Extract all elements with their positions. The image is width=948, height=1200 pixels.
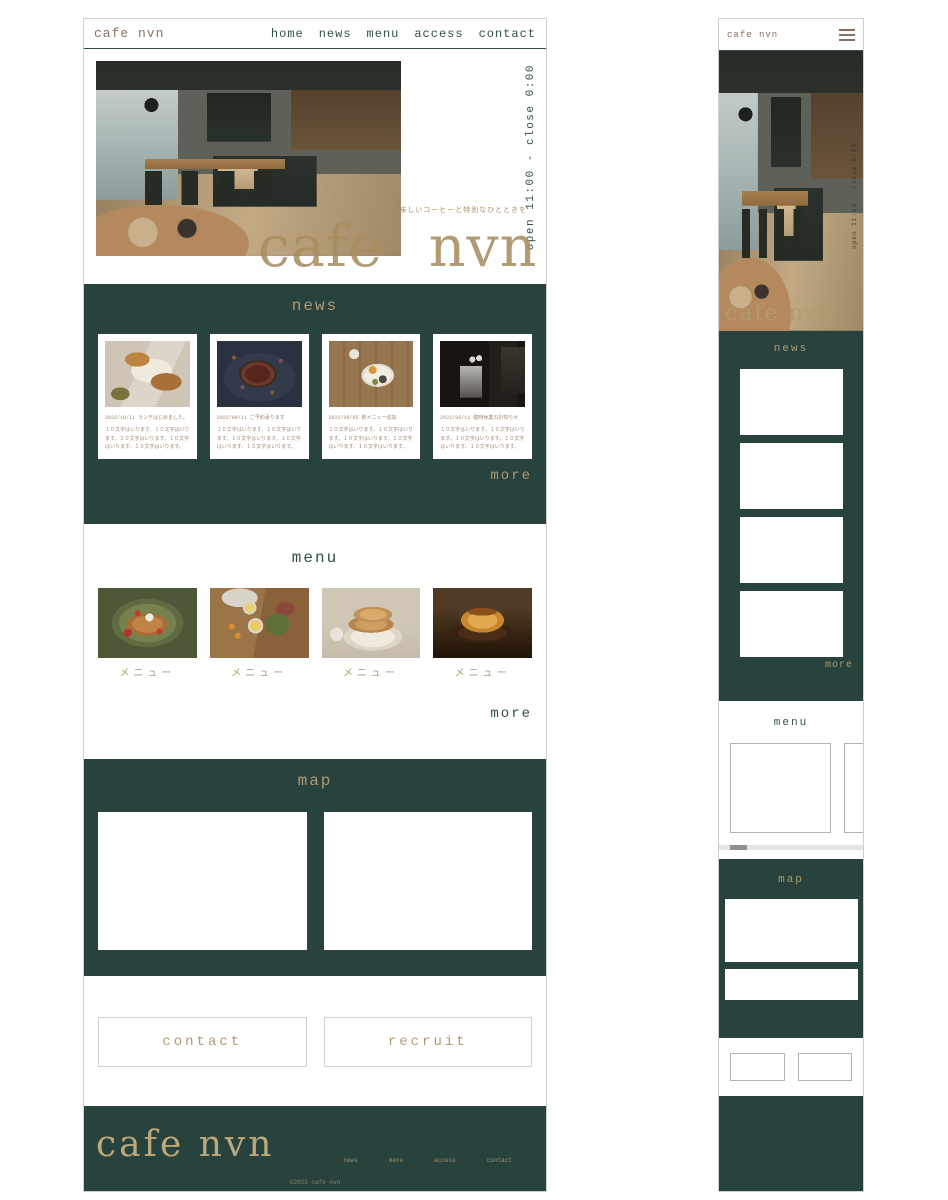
mobile-map-section: map [719,859,863,1038]
menu-item-label: メニュー [210,664,309,680]
menu-photo-french-toast [98,588,197,658]
menu-section: menu メニュー メニュー メニュー メニュー more [84,524,546,759]
mobile-news-more-link[interactable]: more [719,657,863,671]
menu-item-label: メニュー [322,664,421,680]
mobile-hero-title: cafe nvn [725,303,835,325]
news-photo-cake [217,341,302,407]
map-embed-placeholder[interactable] [98,812,307,950]
footer-nav-menu[interactable]: menu [389,1157,403,1164]
news-body: １０文字はいります。１０文字はいります。１０文字はいります。１０文字はいります。… [440,426,525,452]
scrollbar-thumb[interactable] [730,845,747,850]
menu-item-list: メニュー メニュー メニュー メニュー [84,588,546,680]
mobile-news-card[interactable] [740,517,843,583]
map-section-title: map [84,759,546,790]
mobile-footer [719,1096,863,1191]
footer-nav-news[interactable]: news [343,1157,357,1164]
nav-item-home[interactable]: home [271,27,304,41]
news-title: 臨時休業のお知らせ [473,415,518,421]
hero-section: open 11:00 - close 0:00 美味しいコーヒーと特別なひととき… [84,49,546,284]
mobile-news-card[interactable] [740,443,843,509]
mobile-news-section: news more [719,331,863,701]
menu-item[interactable]: メニュー [433,588,532,680]
opening-hours-vertical: open 11:00 - close 0:00 [525,59,539,239]
hero-title-nvn: nvn [429,219,538,276]
mobile-cta-section [719,1038,863,1096]
news-card[interactable]: 2022/08/11臨時休業のお知らせ １０文字はいります。１０文字はいります。… [433,334,532,459]
menu-item-label: メニュー [433,664,532,680]
main-nav: home news menu access contact [271,27,536,41]
mobile-news-card[interactable] [740,369,843,435]
mobile-recruit-button[interactable] [798,1053,853,1081]
mobile-menu-carousel [730,743,864,833]
news-section: news 2022/10/11ランチはじめました。 １０文字はいります。１０文字… [84,284,546,524]
map-info-placeholder [324,812,533,950]
mobile-hero-section: open 11:00 - close 0:00 cafe nvn [719,51,863,331]
contact-button[interactable]: contact [98,1017,307,1067]
news-card[interactable]: 2022/09/05新メニュー追加 １０文字はいります。１０文字はいります。１０… [322,334,421,459]
menu-photo-soup-board [210,588,309,658]
news-date: 2022/09/11 [217,415,247,421]
copyright: ©2023 cafe nvn [84,1179,546,1186]
news-photo-plate [329,341,414,407]
mobile-opening-hours-vertical: open 11:00 - close 0:00 [851,135,860,265]
nav-item-access[interactable]: access [414,27,463,41]
mobile-menu-card[interactable] [730,743,831,833]
menu-item-label: メニュー [98,664,197,680]
map-section: map [84,759,546,976]
menu-item[interactable]: メニュー [210,588,309,680]
news-more-link[interactable]: more [84,459,546,484]
news-photo-pastries [105,341,190,407]
footer-nav-access[interactable]: access [434,1157,456,1164]
menu-more-link[interactable]: more [84,680,546,722]
desktop-header: cafe nvn home news menu access contact [84,19,546,49]
carousel-scrollbar[interactable] [719,845,863,850]
mobile-map-title: map [719,859,863,886]
mobile-news-list [719,369,863,657]
mobile-news-title: news [719,331,863,355]
mobile-menu-section: menu [719,701,863,859]
cta-section: contact recruit [84,976,546,1106]
news-title: ランチはじめました。 [138,415,188,421]
mobile-menu-title: menu [719,701,863,729]
footer-nav: news menu access contact [343,1157,546,1164]
news-body: １０文字はいります。１０文字はいります。１０文字はいります。１０文字はいります。… [329,426,414,452]
mobile-menu-card[interactable] [844,743,864,833]
desktop-preview-frame: cafe nvn home news menu access contact o… [83,18,547,1192]
menu-section-title: menu [84,524,546,567]
mobile-contact-button[interactable] [730,1053,785,1081]
menu-photo-pancakes [322,588,421,658]
nav-item-menu[interactable]: menu [367,27,400,41]
footer-logo: cafe nvn [96,1124,274,1165]
mobile-site-logo[interactable]: cafe nvn [727,30,778,40]
mobile-map-info-placeholder [725,969,858,1000]
menu-item[interactable]: メニュー [98,588,197,680]
news-date: 2022/10/11 [105,415,135,421]
news-title: 新メニュー追加 [362,415,397,421]
news-date: 2022/08/11 [440,415,470,421]
news-card[interactable]: 2022/10/11ランチはじめました。 １０文字はいります。１０文字はいります… [98,334,197,459]
mobile-map-embed-placeholder[interactable] [725,899,858,962]
news-body: １０文字はいります。１０文字はいります。１０文字はいります。１０文字はいります。… [217,426,302,452]
recruit-button[interactable]: recruit [324,1017,533,1067]
news-title: ご予約承ります [250,415,285,421]
hero-title: cafe nvn [258,219,537,276]
news-photo-espresso-machine [440,341,525,407]
menu-photo-pudding [433,588,532,658]
news-section-title: news [84,284,546,315]
mobile-news-card[interactable] [740,591,843,657]
news-date: 2022/09/05 [329,415,359,421]
news-body: １０文字はいります。１０文字はいります。１０文字はいります。１０文字はいります。… [105,426,190,452]
footer-nav-contact[interactable]: contact [487,1157,512,1164]
news-card-list: 2022/10/11ランチはじめました。 １０文字はいります。１０文字はいります… [84,334,546,459]
mobile-preview-frame: cafe nvn open 11:00 - close 0:00 cafe nv… [718,18,864,1192]
nav-item-contact[interactable]: contact [479,27,536,41]
news-card[interactable]: 2022/09/11ご予約承ります １０文字はいります。１０文字はいります。１０… [210,334,309,459]
site-logo[interactable]: cafe nvn [94,26,164,41]
hero-title-cafe: cafe [258,219,383,276]
menu-item[interactable]: メニュー [322,588,421,680]
nav-item-news[interactable]: news [319,27,352,41]
mobile-header: cafe nvn [719,19,863,51]
hamburger-menu-icon[interactable] [839,26,855,44]
mobile-hero-cafe-photo [719,51,863,331]
footer: cafe nvn news menu access contact ©2023 … [84,1106,546,1191]
